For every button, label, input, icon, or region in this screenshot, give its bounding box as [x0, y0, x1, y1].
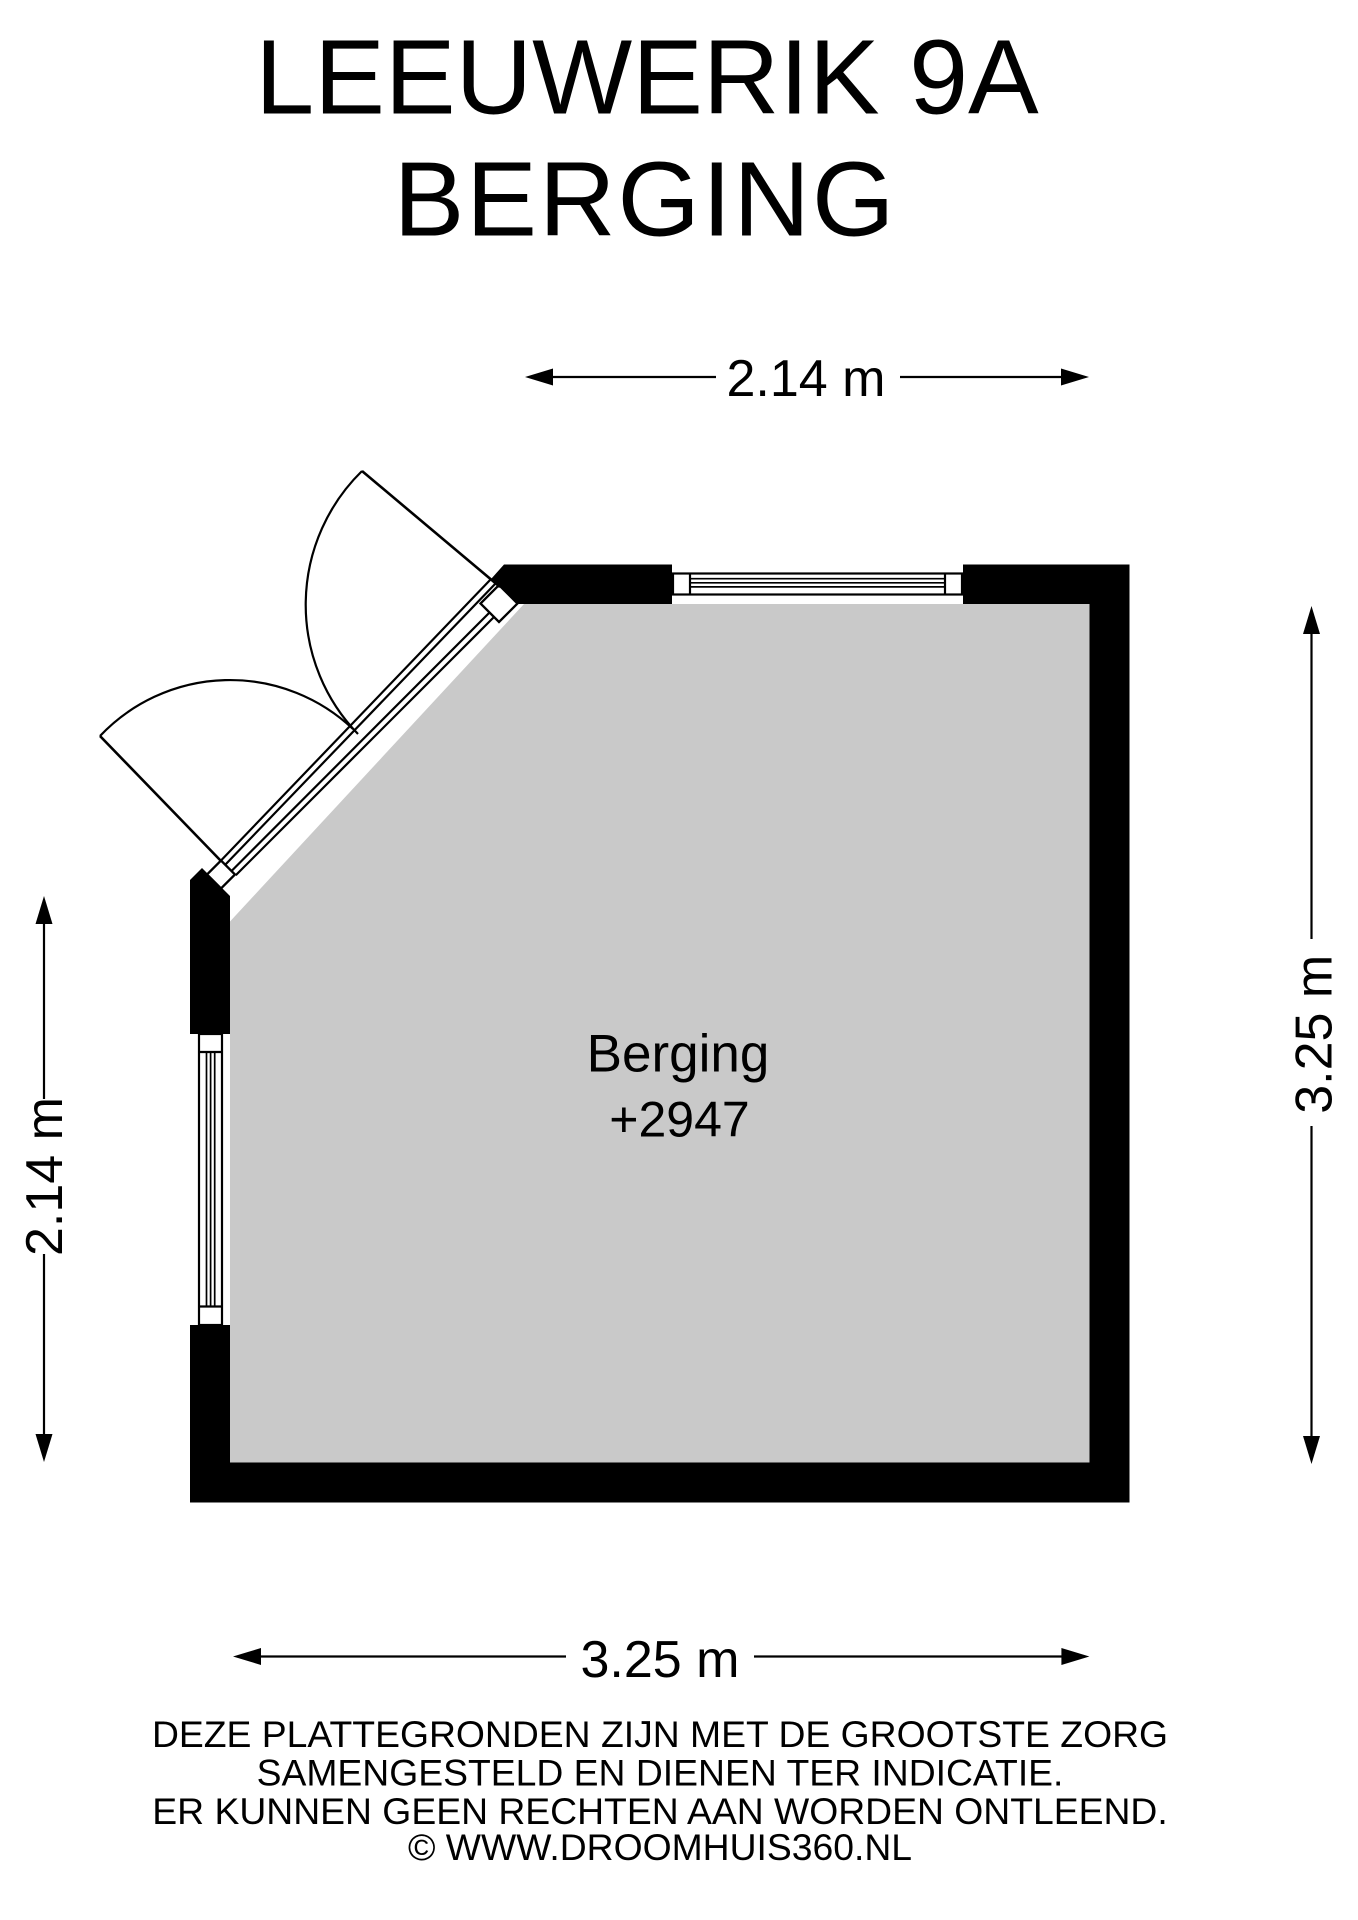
svg-text:Berging: Berging [587, 1025, 770, 1084]
svg-text:DEZE PLATTEGRONDEN ZIJN MET DE: DEZE PLATTEGRONDEN ZIJN MET DE GROOTSTE … [152, 1713, 1168, 1755]
svg-text:+2947: +2947 [609, 1092, 749, 1148]
svg-text:LEEUWERIK 9A: LEEUWERIK 9A [255, 19, 1039, 137]
svg-text:3.25 m: 3.25 m [1286, 955, 1344, 1114]
svg-text:2.14 m: 2.14 m [727, 350, 886, 408]
svg-text:SAMENGESTELD EN DIENEN TER IND: SAMENGESTELD EN DIENEN TER INDICATIE. [257, 1752, 1064, 1794]
svg-text:3.25 m: 3.25 m [581, 1631, 740, 1689]
svg-text:© WWW.DROOMHUIS360.NL: © WWW.DROOMHUIS360.NL [408, 1826, 912, 1868]
svg-text:BERGING: BERGING [394, 141, 897, 259]
svg-text:2.14 m: 2.14 m [16, 1097, 74, 1256]
